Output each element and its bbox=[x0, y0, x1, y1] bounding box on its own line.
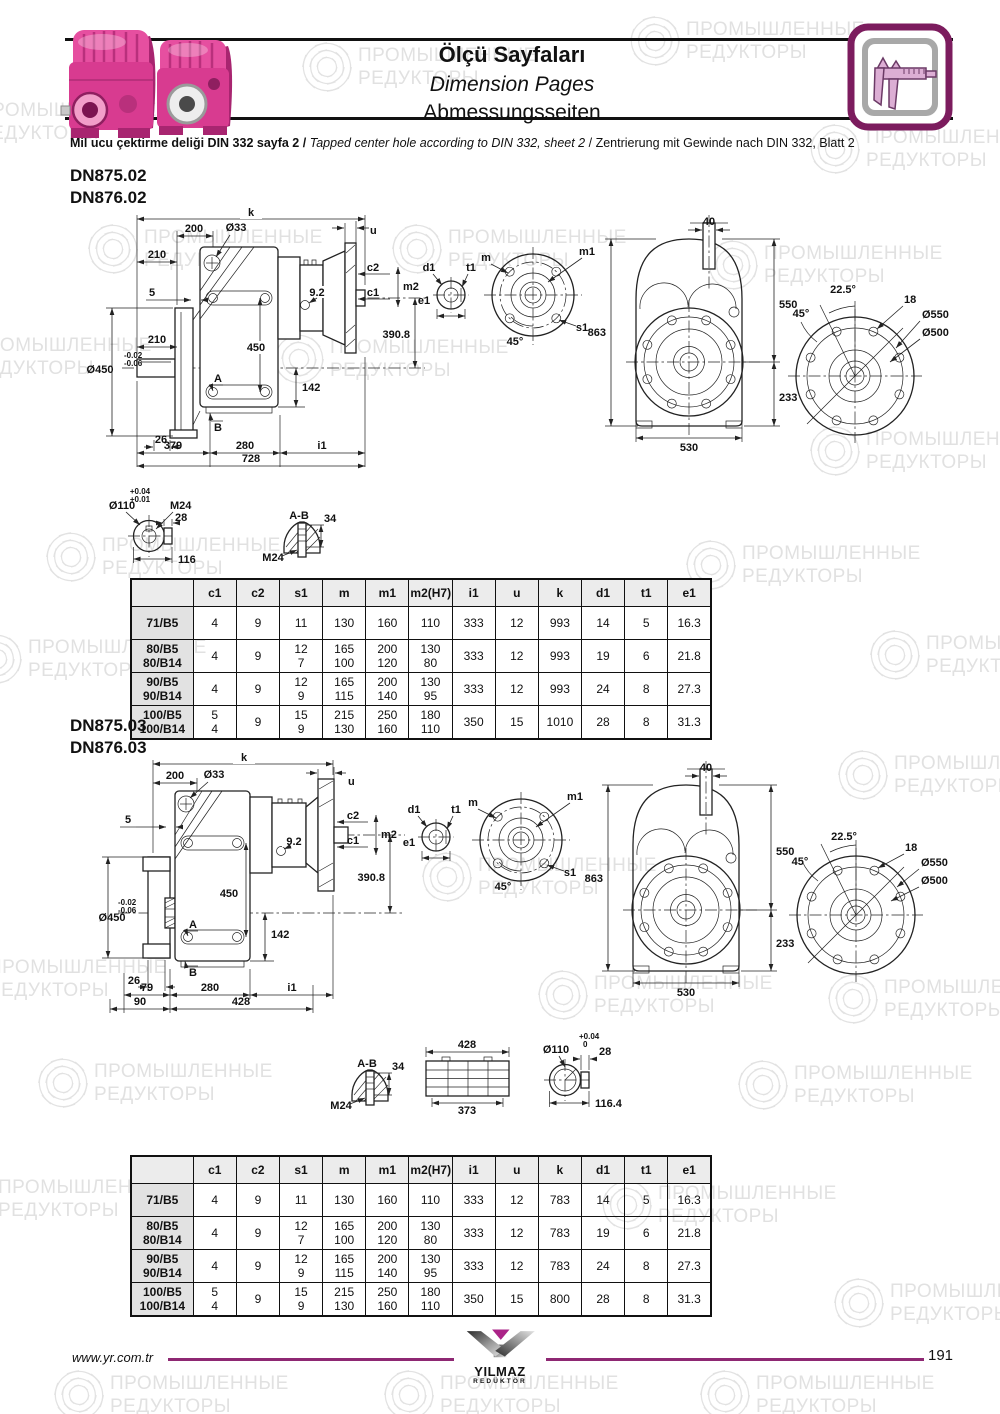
flange-m-label-03: m bbox=[468, 797, 478, 809]
table-row: 90/B5 90/B144912 9165 115200 140130 9533… bbox=[131, 673, 711, 706]
value-cell: 4 bbox=[193, 1250, 236, 1283]
rear-flange-view-02: 22.5° 18 45° Ø550 Ø500 bbox=[788, 284, 949, 443]
value-cell: 993 bbox=[538, 640, 581, 673]
detail03-1164-label: 116.4 bbox=[595, 1098, 623, 1110]
value-cell: 165 100 bbox=[323, 640, 366, 673]
dimension-table-dn875-02: c1c2s1mm1m2(H7)i1ukd1t1e171/B54911130160… bbox=[130, 578, 712, 740]
dim-dia33-label: Ø33 bbox=[226, 222, 247, 234]
dim-280-label-03: 280 bbox=[201, 982, 219, 994]
note-separator-2: / bbox=[589, 136, 592, 150]
value-cell: 11 bbox=[279, 607, 322, 640]
note-english: Tapped center hole according to DIN 332,… bbox=[310, 136, 585, 150]
value-cell: 333 bbox=[452, 640, 495, 673]
dim-c2-label: c2 bbox=[367, 262, 379, 274]
value-cell: 165 115 bbox=[323, 1250, 366, 1283]
input-shaft-end-view-03: d1 t1 e1 bbox=[403, 804, 461, 861]
front-233-label: 233 bbox=[779, 392, 797, 404]
dim-i1-label-03: i1 bbox=[287, 982, 296, 994]
watermark-line2: РЕДУКТОРЫ bbox=[890, 1303, 1000, 1326]
watermark-line1: ПРОМЫШЛЕННЫЕ bbox=[926, 632, 1000, 655]
dim-379-label: 379 bbox=[164, 440, 182, 452]
watermark-swirl-icon bbox=[0, 632, 24, 686]
footer-rule-right bbox=[546, 1358, 924, 1361]
rear-225-label: 22.5° bbox=[830, 284, 856, 296]
table-row: 100/B5 100/B145 4915 9215 130250 160180 … bbox=[131, 706, 711, 740]
value-cell: 12 bbox=[495, 1250, 538, 1283]
value-cell: 11 bbox=[279, 1184, 322, 1217]
page-title-english: Dimension Pages bbox=[262, 73, 762, 97]
detail02-ab-label: A-B bbox=[289, 510, 309, 522]
dim-m2-label: m2 bbox=[403, 281, 419, 293]
dim-m2-label-03: m2 bbox=[381, 829, 397, 841]
value-cell: 9 bbox=[236, 1184, 279, 1217]
label-section-a-03: A bbox=[189, 919, 197, 931]
value-cell: 4 bbox=[193, 1184, 236, 1217]
table-header-cell: m2(H7) bbox=[409, 579, 452, 607]
value-cell: 215 130 bbox=[323, 706, 366, 740]
watermark-swirl-icon bbox=[52, 1368, 106, 1414]
table-header-cell: s1 bbox=[279, 1156, 322, 1184]
flange-45-label-03: 45° bbox=[495, 881, 512, 893]
table-header-cell: m2(H7) bbox=[409, 1156, 452, 1184]
rear-dia550-label-03: Ø550 bbox=[921, 857, 948, 869]
logo-text-reduktor: REDÜKTÖR bbox=[452, 1378, 548, 1386]
caliper-icon bbox=[846, 22, 954, 137]
flange-s1-label: s1 bbox=[576, 322, 588, 334]
front-40-label: 40 bbox=[703, 216, 715, 228]
watermark-line1: ПРОМЫШЛЕННЫЕ bbox=[890, 1280, 1000, 1303]
row-label-cell: 80/B5 80/B14 bbox=[131, 1217, 193, 1250]
watermark-swirl-icon bbox=[868, 628, 922, 682]
detail02-dia110-label: Ø110 bbox=[109, 500, 135, 512]
value-cell: 215 130 bbox=[323, 1283, 366, 1317]
table-row: 100/B5 100/B145 4915 9215 130250 160180 … bbox=[131, 1283, 711, 1317]
page-title-german: Abmessungsseiten bbox=[262, 101, 762, 125]
rear-dia500-label: Ø500 bbox=[922, 327, 949, 339]
watermark: ПРОМЫШЛЕННЫЕРЕДУКТОРЫ bbox=[832, 1276, 1000, 1330]
table-header-cell: d1 bbox=[581, 579, 624, 607]
value-cell: 24 bbox=[581, 1250, 624, 1283]
value-cell: 165 100 bbox=[323, 1217, 366, 1250]
watermark-swirl-icon bbox=[382, 1368, 436, 1414]
value-cell: 783 bbox=[538, 1250, 581, 1283]
table-header-cell: u bbox=[495, 579, 538, 607]
shaft-e1-label-03: e1 bbox=[403, 837, 415, 849]
input-shaft-end-view-02: d1 t1 e1 bbox=[418, 262, 476, 319]
page-title-block: Ölçü Sayfaları Dimension Pages Abmessung… bbox=[262, 42, 762, 125]
dim-200-label: 200 bbox=[185, 223, 203, 235]
value-cell: 8 bbox=[625, 1250, 668, 1283]
table-header-cell: e1 bbox=[668, 1156, 711, 1184]
detail-ab-section-03: A-B 34 M24 bbox=[330, 1058, 405, 1112]
dim-280-label: 280 bbox=[236, 440, 254, 452]
table-header-cell: m bbox=[323, 579, 366, 607]
detail-ab-section-02: A-B 34 M24 bbox=[262, 510, 337, 564]
value-cell: 110 bbox=[409, 607, 452, 640]
dim-210-mid-label: 210 bbox=[148, 334, 166, 346]
value-cell: 200 120 bbox=[366, 640, 409, 673]
dim-92-label: 9.2 bbox=[309, 287, 324, 299]
watermark-line1: ПРОМЫШЛЕННЫЕ bbox=[110, 1372, 289, 1395]
catalog-page: ПРОМЫШЛЕННЫЕРЕДУКТОРЫПРОМЫШЛЕННЫЕРЕДУКТО… bbox=[0, 0, 1000, 1414]
drawing-set-02: k 200 Ø33 210 5 210 -0.02 -0.06 Ø450 450… bbox=[60, 195, 1000, 573]
value-cell: 15 9 bbox=[279, 706, 322, 740]
dim-dia450-label-03: Ø450 bbox=[99, 912, 126, 924]
label-section-a: A bbox=[214, 373, 222, 385]
value-cell: 12 7 bbox=[279, 1217, 322, 1250]
flange-m1-label-03: m1 bbox=[567, 791, 583, 803]
value-cell: 333 bbox=[452, 1217, 495, 1250]
note-german: Zentrierung mit Gewinde nach DIN 332, Bl… bbox=[596, 136, 855, 150]
dim-90-label: 90 bbox=[134, 996, 146, 1008]
front-view-02: 40 863 550 233 530 bbox=[588, 215, 798, 454]
gearbox-photo-left bbox=[61, 30, 155, 138]
value-cell: 8 bbox=[625, 706, 668, 740]
value-cell: 130 95 bbox=[409, 1250, 452, 1283]
value-cell: 27.3 bbox=[668, 1250, 711, 1283]
detail03-ab-label: A-B bbox=[357, 1058, 377, 1070]
value-cell: 160 bbox=[366, 607, 409, 640]
value-cell: 8 bbox=[625, 1283, 668, 1317]
value-cell: 110 bbox=[409, 1184, 452, 1217]
side-view-03: k 200 Ø33 5 -0.02 -0.06 Ø450 450 390.8 c… bbox=[99, 752, 405, 1013]
value-cell: 5 bbox=[625, 1184, 668, 1217]
value-cell: 5 4 bbox=[193, 1283, 236, 1317]
value-cell: 250 160 bbox=[366, 706, 409, 740]
dim-c1-label: c1 bbox=[367, 287, 379, 299]
value-cell: 12 bbox=[495, 673, 538, 706]
value-cell: 800 bbox=[538, 1283, 581, 1317]
value-cell: 165 115 bbox=[323, 673, 366, 706]
value-cell: 4 bbox=[193, 1217, 236, 1250]
table-header-cell: u bbox=[495, 1156, 538, 1184]
front-233-label-03: 233 bbox=[776, 938, 794, 950]
table-header-cell: c2 bbox=[236, 579, 279, 607]
detail-sleeve-03: 428 373 bbox=[426, 1039, 509, 1117]
dim-142-label: 142 bbox=[302, 382, 320, 394]
dim-450-label-03: 450 bbox=[220, 888, 238, 900]
value-cell: 993 bbox=[538, 607, 581, 640]
value-cell: 14 bbox=[581, 607, 624, 640]
dim-142-label-03: 142 bbox=[271, 929, 289, 941]
value-cell: 200 140 bbox=[366, 673, 409, 706]
table-header-cell: c1 bbox=[193, 1156, 236, 1184]
dim-5-label-03: 5 bbox=[125, 814, 131, 826]
value-cell: 993 bbox=[538, 673, 581, 706]
value-cell: 9 bbox=[236, 1217, 279, 1250]
detail02-m24-bolt-label: M24 bbox=[262, 552, 284, 564]
input-flange-face-view-03: m m1 s1 45° bbox=[468, 791, 583, 893]
watermark: ПРОМЫШЛЕННЫЕРЕДУКТОРЫ bbox=[698, 1368, 935, 1414]
value-cell: 12 bbox=[495, 1184, 538, 1217]
detail-hollow-bore-03: +0.04 0 Ø110 28 116.4 bbox=[543, 1032, 623, 1110]
detail03-tol-lower: 0 bbox=[583, 1040, 588, 1049]
footer-rule-left bbox=[168, 1358, 454, 1361]
front-view-03: 40 863 550 233 530 bbox=[585, 761, 795, 999]
rear-flange-view-03: 22.5° 18 45° Ø550 Ø500 bbox=[789, 831, 948, 982]
value-cell: 333 bbox=[452, 607, 495, 640]
value-cell: 8 bbox=[625, 673, 668, 706]
rear-18-label-03: 18 bbox=[905, 842, 917, 854]
rear-dia500-label-03: Ø500 bbox=[921, 875, 948, 887]
front-863-label-03: 863 bbox=[585, 873, 603, 885]
table-header-cell: m bbox=[323, 1156, 366, 1184]
table-header-cell: e1 bbox=[668, 579, 711, 607]
value-cell: 21.8 bbox=[668, 640, 711, 673]
value-cell: 9 bbox=[236, 607, 279, 640]
model-number-dn875-02: DN875.02 bbox=[70, 166, 147, 186]
detail03-28-label: 28 bbox=[599, 1046, 611, 1058]
value-cell: 31.3 bbox=[668, 1283, 711, 1317]
table-header-cell: c2 bbox=[236, 1156, 279, 1184]
shaft-t1-label-03: t1 bbox=[451, 804, 461, 816]
value-cell: 12 7 bbox=[279, 640, 322, 673]
dim-u-label: u bbox=[370, 225, 377, 237]
value-cell: 4 bbox=[193, 673, 236, 706]
detail-hollow-shaft-02: +0.04 +0.01 Ø110 M24 28 116 bbox=[109, 487, 196, 566]
value-cell: 9 bbox=[236, 1283, 279, 1317]
value-cell: 130 bbox=[323, 1184, 366, 1217]
yilmaz-logo-icon bbox=[462, 1327, 538, 1359]
row-label-cell: 90/B5 90/B14 bbox=[131, 1250, 193, 1283]
table-header-cell: s1 bbox=[279, 579, 322, 607]
value-cell: 12 9 bbox=[279, 673, 322, 706]
row-label-cell: 71/B5 bbox=[131, 1184, 193, 1217]
table-row: 71/B549111301601103331278314516.3 bbox=[131, 1184, 711, 1217]
front-530-label: 530 bbox=[680, 442, 698, 454]
value-cell: 21.8 bbox=[668, 1217, 711, 1250]
value-cell: 9 bbox=[236, 1250, 279, 1283]
value-cell: 12 bbox=[495, 607, 538, 640]
value-cell: 4 bbox=[193, 607, 236, 640]
table-header-cell: k bbox=[538, 1156, 581, 1184]
dimension-table-dn875-03: c1c2s1mm1m2(H7)i1ukd1t1e171/B54911130160… bbox=[130, 1155, 712, 1317]
note-separator-1: / bbox=[303, 136, 306, 150]
detail02-34-label: 34 bbox=[324, 513, 337, 525]
value-cell: 14 bbox=[581, 1184, 624, 1217]
value-cell: 16.3 bbox=[668, 607, 711, 640]
dim-u-label-03: u bbox=[348, 776, 355, 788]
value-cell: 783 bbox=[538, 1184, 581, 1217]
value-cell: 130 bbox=[323, 607, 366, 640]
page-number: 191 bbox=[928, 1347, 953, 1364]
watermark-line2: РЕДУКТОРЫ bbox=[926, 655, 1000, 678]
dim-dia450-label: Ø450 bbox=[87, 364, 114, 376]
value-cell: 27.3 bbox=[668, 673, 711, 706]
value-cell: 4 bbox=[193, 640, 236, 673]
flange-m-label: m bbox=[481, 252, 491, 264]
value-cell: 250 160 bbox=[366, 1283, 409, 1317]
value-cell: 16.3 bbox=[668, 1184, 711, 1217]
table-header-row: c1c2s1mm1m2(H7)i1ukd1t1e1 bbox=[131, 579, 711, 607]
dim-200-label-03: 200 bbox=[166, 770, 184, 782]
table-header-cell: t1 bbox=[625, 1156, 668, 1184]
value-cell: 6 bbox=[625, 1217, 668, 1250]
shaft-t1-label: t1 bbox=[466, 262, 476, 274]
watermark-swirl-icon bbox=[832, 1276, 886, 1330]
row-label-cell: 100/B5 100/B14 bbox=[131, 1283, 193, 1317]
dim-c2-label-03: c2 bbox=[347, 810, 359, 822]
value-cell: 130 95 bbox=[409, 673, 452, 706]
value-cell: 24 bbox=[581, 673, 624, 706]
dim-428-label: 428 bbox=[232, 996, 250, 1008]
watermark-line1: ПРОМЫШЛЕННЫЕ bbox=[756, 1372, 935, 1395]
value-cell: 180 110 bbox=[409, 706, 452, 740]
gearbox-photo-right bbox=[157, 40, 232, 135]
table-row: 80/B5 80/B144912 7165 100200 120130 8033… bbox=[131, 1217, 711, 1250]
dim-79-label: 79 bbox=[141, 982, 153, 994]
watermark-line2: РЕДУКТОРЫ bbox=[866, 149, 1000, 172]
value-cell: 333 bbox=[452, 1250, 495, 1283]
rear-dia550-label: Ø550 bbox=[922, 309, 949, 321]
value-cell: 15 bbox=[495, 1283, 538, 1317]
dim-390-label-03: 390.8 bbox=[357, 872, 385, 884]
value-cell: 1010 bbox=[538, 706, 581, 740]
row-label-cell: 90/B5 90/B14 bbox=[131, 673, 193, 706]
table-header-cell: k bbox=[538, 579, 581, 607]
dim-i1-label: i1 bbox=[317, 440, 326, 452]
dim-dia33-label-03: Ø33 bbox=[204, 769, 225, 781]
value-cell: 350 bbox=[452, 706, 495, 740]
label-section-b: B bbox=[214, 422, 222, 434]
watermark-line2: РЕДУКТОРЫ bbox=[110, 1395, 289, 1414]
watermark-line2: РЕДУКТОРЫ bbox=[440, 1395, 619, 1414]
detail03-428-label: 428 bbox=[458, 1039, 476, 1051]
value-cell: 12 bbox=[495, 1217, 538, 1250]
value-cell: 28 bbox=[581, 1283, 624, 1317]
dim-26-label-03: 26 bbox=[128, 975, 140, 987]
table-corner-cell bbox=[131, 579, 193, 607]
dim-728-label: 728 bbox=[242, 453, 260, 465]
detail02-28-label: 28 bbox=[175, 512, 187, 524]
footer-website-url[interactable]: www.yr.com.tr bbox=[72, 1350, 153, 1365]
tol-lower-label: -0.06 bbox=[124, 359, 143, 368]
rear-18-label: 18 bbox=[904, 294, 916, 306]
value-cell: 350 bbox=[452, 1283, 495, 1317]
page-title-turkish: Ölçü Sayfaları bbox=[262, 42, 762, 68]
drawing-set-03: k 200 Ø33 5 -0.02 -0.06 Ø450 450 390.8 c… bbox=[60, 745, 1000, 1130]
rear-225-label-03: 22.5° bbox=[831, 831, 857, 843]
table-header-cell: i1 bbox=[452, 1156, 495, 1184]
detail03-m24-label: M24 bbox=[330, 1100, 352, 1112]
table-header-cell: t1 bbox=[625, 579, 668, 607]
table-row: 71/B549111301601103331299314516.3 bbox=[131, 607, 711, 640]
value-cell: 160 bbox=[366, 1184, 409, 1217]
value-cell: 200 120 bbox=[366, 1217, 409, 1250]
shaft-e1-label: e1 bbox=[418, 295, 430, 307]
detail02-m24-label: M24 bbox=[170, 500, 192, 512]
dim-390-label: 390.8 bbox=[382, 329, 410, 341]
table-header-cell: c1 bbox=[193, 579, 236, 607]
value-cell: 28 bbox=[581, 706, 624, 740]
side-view-02: k 200 Ø33 210 5 210 -0.02 -0.06 Ø450 450… bbox=[87, 207, 425, 467]
model-number-dn875-03: DN875.03 bbox=[70, 716, 147, 736]
value-cell: 12 bbox=[495, 640, 538, 673]
input-flange-face-view-02: m m1 s1 45° bbox=[481, 246, 595, 348]
value-cell: 783 bbox=[538, 1217, 581, 1250]
shaft-d1-label: d1 bbox=[423, 262, 436, 274]
label-section-b-03: B bbox=[189, 967, 197, 979]
detail02-116-label: 116 bbox=[178, 554, 196, 566]
front-40-label-03: 40 bbox=[700, 762, 712, 774]
value-cell: 130 80 bbox=[409, 1217, 452, 1250]
front-530-label-03: 530 bbox=[677, 987, 695, 999]
value-cell: 5 4 bbox=[193, 706, 236, 740]
detail03-34-label: 34 bbox=[392, 1061, 405, 1073]
watermark: ПРОМЫШЛЕННЫЕРЕДУКТОРЫ bbox=[52, 1368, 289, 1414]
value-cell: 5 bbox=[625, 607, 668, 640]
value-cell: 9 bbox=[236, 673, 279, 706]
detail03-373-label: 373 bbox=[458, 1105, 476, 1117]
table-header-row: c1c2s1mm1m2(H7)i1ukd1t1e1 bbox=[131, 1156, 711, 1184]
rear-45-label: 45° bbox=[793, 308, 810, 320]
value-cell: 200 140 bbox=[366, 1250, 409, 1283]
table-header-cell: d1 bbox=[581, 1156, 624, 1184]
flange-m1-label: m1 bbox=[579, 246, 595, 258]
watermark-swirl-icon bbox=[698, 1368, 752, 1414]
table-row: 90/B5 90/B144912 9165 115200 140130 9533… bbox=[131, 1250, 711, 1283]
value-cell: 6 bbox=[625, 640, 668, 673]
table-corner-cell bbox=[131, 1156, 193, 1184]
rear-45-label-03: 45° bbox=[792, 856, 809, 868]
value-cell: 130 80 bbox=[409, 640, 452, 673]
shaft-d1-label-03: d1 bbox=[408, 804, 421, 816]
value-cell: 333 bbox=[452, 673, 495, 706]
value-cell: 9 bbox=[236, 706, 279, 740]
table-row: 80/B5 80/B144912 7165 100200 120130 8033… bbox=[131, 640, 711, 673]
flange-45-label: 45° bbox=[507, 336, 524, 348]
watermark: ПРОМЫШЛЕННЫЕРЕДУКТОРЫ bbox=[868, 628, 1000, 682]
value-cell: 333 bbox=[452, 1184, 495, 1217]
row-label-cell: 80/B5 80/B14 bbox=[131, 640, 193, 673]
dim-210-top-label: 210 bbox=[148, 249, 166, 261]
table-header-cell: m1 bbox=[366, 1156, 409, 1184]
dim-450-label: 450 bbox=[247, 342, 265, 354]
product-photo-gearboxes bbox=[60, 16, 242, 148]
row-label-cell: 71/B5 bbox=[131, 607, 193, 640]
dim-k-label: k bbox=[248, 207, 255, 219]
value-cell: 19 bbox=[581, 1217, 624, 1250]
front-863-label: 863 bbox=[588, 327, 606, 339]
value-cell: 180 110 bbox=[409, 1283, 452, 1317]
value-cell: 31.3 bbox=[668, 706, 711, 740]
dim-k-label-03: k bbox=[241, 752, 248, 764]
yilmaz-reduktor-logo: YILMAZ REDÜKTÖR bbox=[452, 1327, 548, 1386]
table-header-cell: m1 bbox=[366, 579, 409, 607]
detail03-dia110-label: Ø110 bbox=[543, 1044, 569, 1056]
logo-text-yilmaz: YILMAZ bbox=[452, 1365, 548, 1378]
table-header-cell: i1 bbox=[452, 579, 495, 607]
value-cell: 9 bbox=[236, 640, 279, 673]
value-cell: 12 9 bbox=[279, 1250, 322, 1283]
value-cell: 15 9 bbox=[279, 1283, 322, 1317]
value-cell: 19 bbox=[581, 640, 624, 673]
dim-c1-label-03: c1 bbox=[347, 835, 359, 847]
watermark-line2: РЕДУКТОРЫ bbox=[756, 1395, 935, 1414]
dim-5-label: 5 bbox=[149, 287, 155, 299]
value-cell: 15 bbox=[495, 706, 538, 740]
dim-92-label-03: 9.2 bbox=[286, 836, 301, 848]
flange-s1-label-03: s1 bbox=[564, 867, 576, 879]
